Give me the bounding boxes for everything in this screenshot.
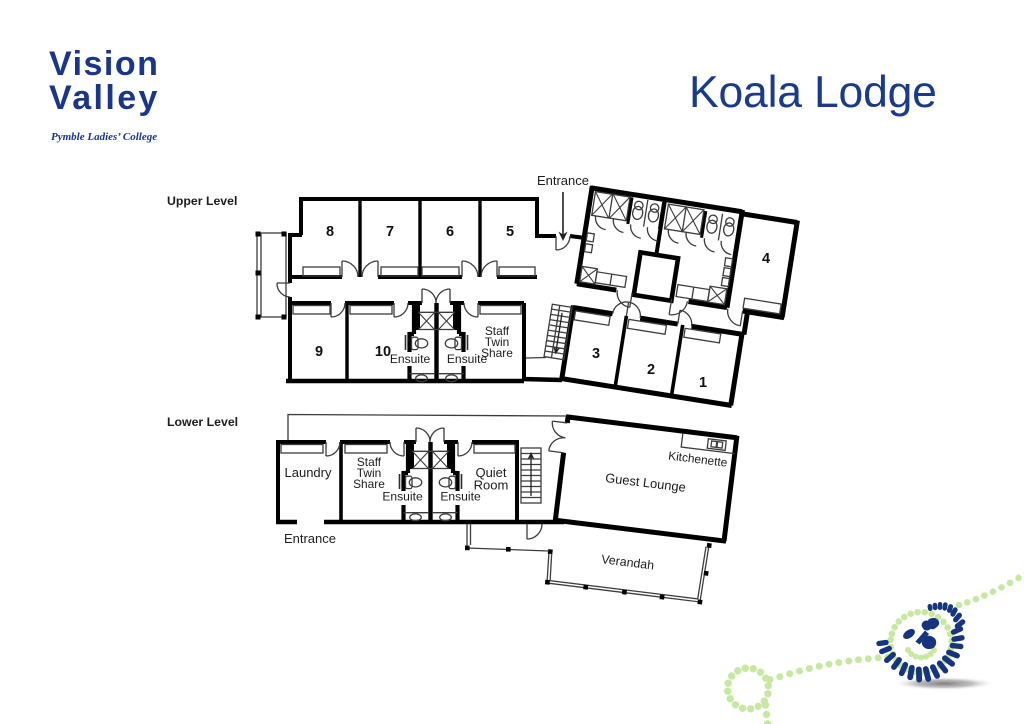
svg-text:9: 9 bbox=[315, 344, 323, 360]
svg-text:Lower Level: Lower Level bbox=[167, 415, 238, 429]
svg-text:Koala Lodge: Koala Lodge bbox=[689, 68, 937, 117]
svg-text:8: 8 bbox=[326, 224, 334, 240]
svg-text:4: 4 bbox=[762, 251, 770, 267]
svg-text:3: 3 bbox=[592, 346, 600, 362]
svg-text:Ensuite: Ensuite bbox=[447, 352, 488, 366]
svg-text:5: 5 bbox=[506, 224, 514, 240]
svg-text:1: 1 bbox=[699, 375, 707, 391]
svg-text:Ensuite: Ensuite bbox=[390, 352, 431, 366]
svg-text:6: 6 bbox=[446, 224, 454, 240]
svg-text:Entrance: Entrance bbox=[537, 173, 589, 188]
svg-text:2: 2 bbox=[647, 362, 655, 378]
svg-text:10: 10 bbox=[375, 344, 391, 360]
svg-text:Share: Share bbox=[353, 477, 385, 491]
svg-text:7: 7 bbox=[386, 224, 394, 240]
svg-text:Ensuite: Ensuite bbox=[382, 490, 423, 504]
svg-text:Laundry: Laundry bbox=[285, 465, 332, 480]
svg-text:Vision: Vision bbox=[49, 45, 159, 83]
svg-text:Valley: Valley bbox=[49, 79, 160, 117]
svg-text:Ensuite: Ensuite bbox=[440, 490, 481, 504]
svg-text:Entrance: Entrance bbox=[284, 531, 336, 546]
svg-text:Pymble Ladies’ College: Pymble Ladies’ College bbox=[51, 131, 157, 143]
svg-text:Upper Level: Upper Level bbox=[167, 194, 237, 208]
